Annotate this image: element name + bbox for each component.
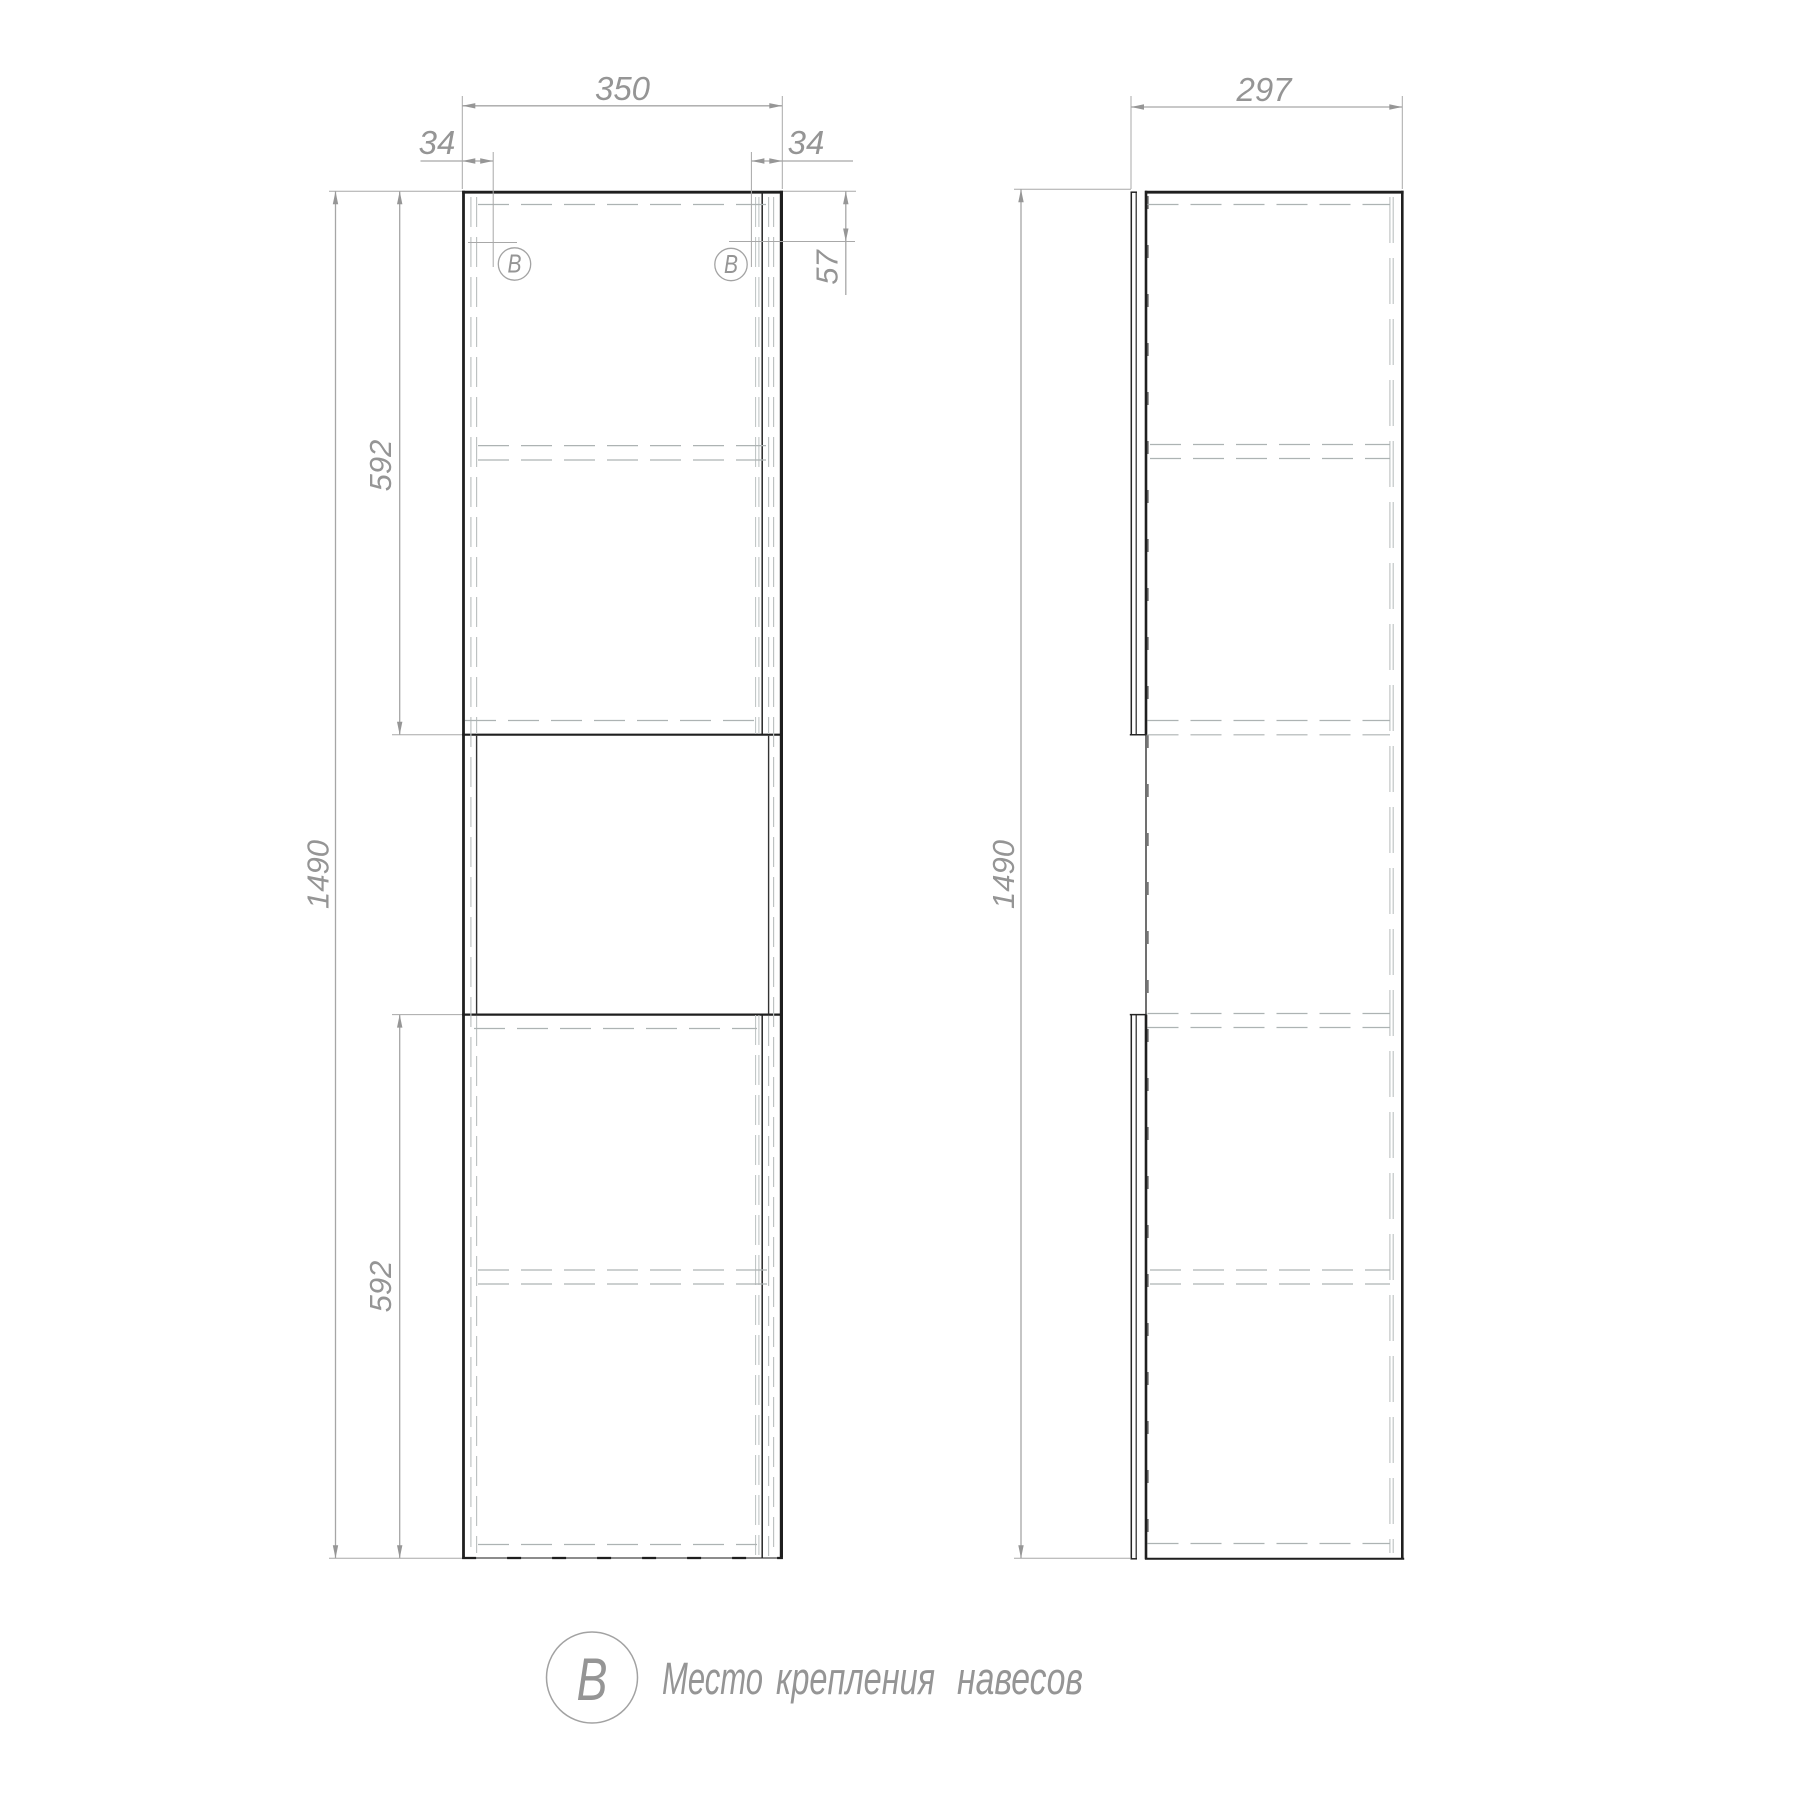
svg-text:Место: Место — [662, 1653, 763, 1704]
svg-text:крепления: крепления — [776, 1653, 935, 1704]
svg-text:350: 350 — [595, 70, 651, 107]
svg-text:1490: 1490 — [301, 840, 336, 909]
svg-text:57: 57 — [810, 249, 845, 285]
svg-text:B: B — [577, 1646, 608, 1713]
svg-text:34: 34 — [788, 124, 825, 161]
svg-text:297: 297 — [1235, 71, 1293, 108]
svg-text:B: B — [508, 249, 522, 279]
svg-text:B: B — [724, 249, 738, 279]
svg-text:34: 34 — [419, 124, 456, 161]
svg-text:навесов: навесов — [957, 1653, 1083, 1704]
svg-text:1490: 1490 — [986, 840, 1021, 909]
svg-text:592: 592 — [363, 1261, 398, 1313]
svg-text:592: 592 — [363, 440, 398, 492]
